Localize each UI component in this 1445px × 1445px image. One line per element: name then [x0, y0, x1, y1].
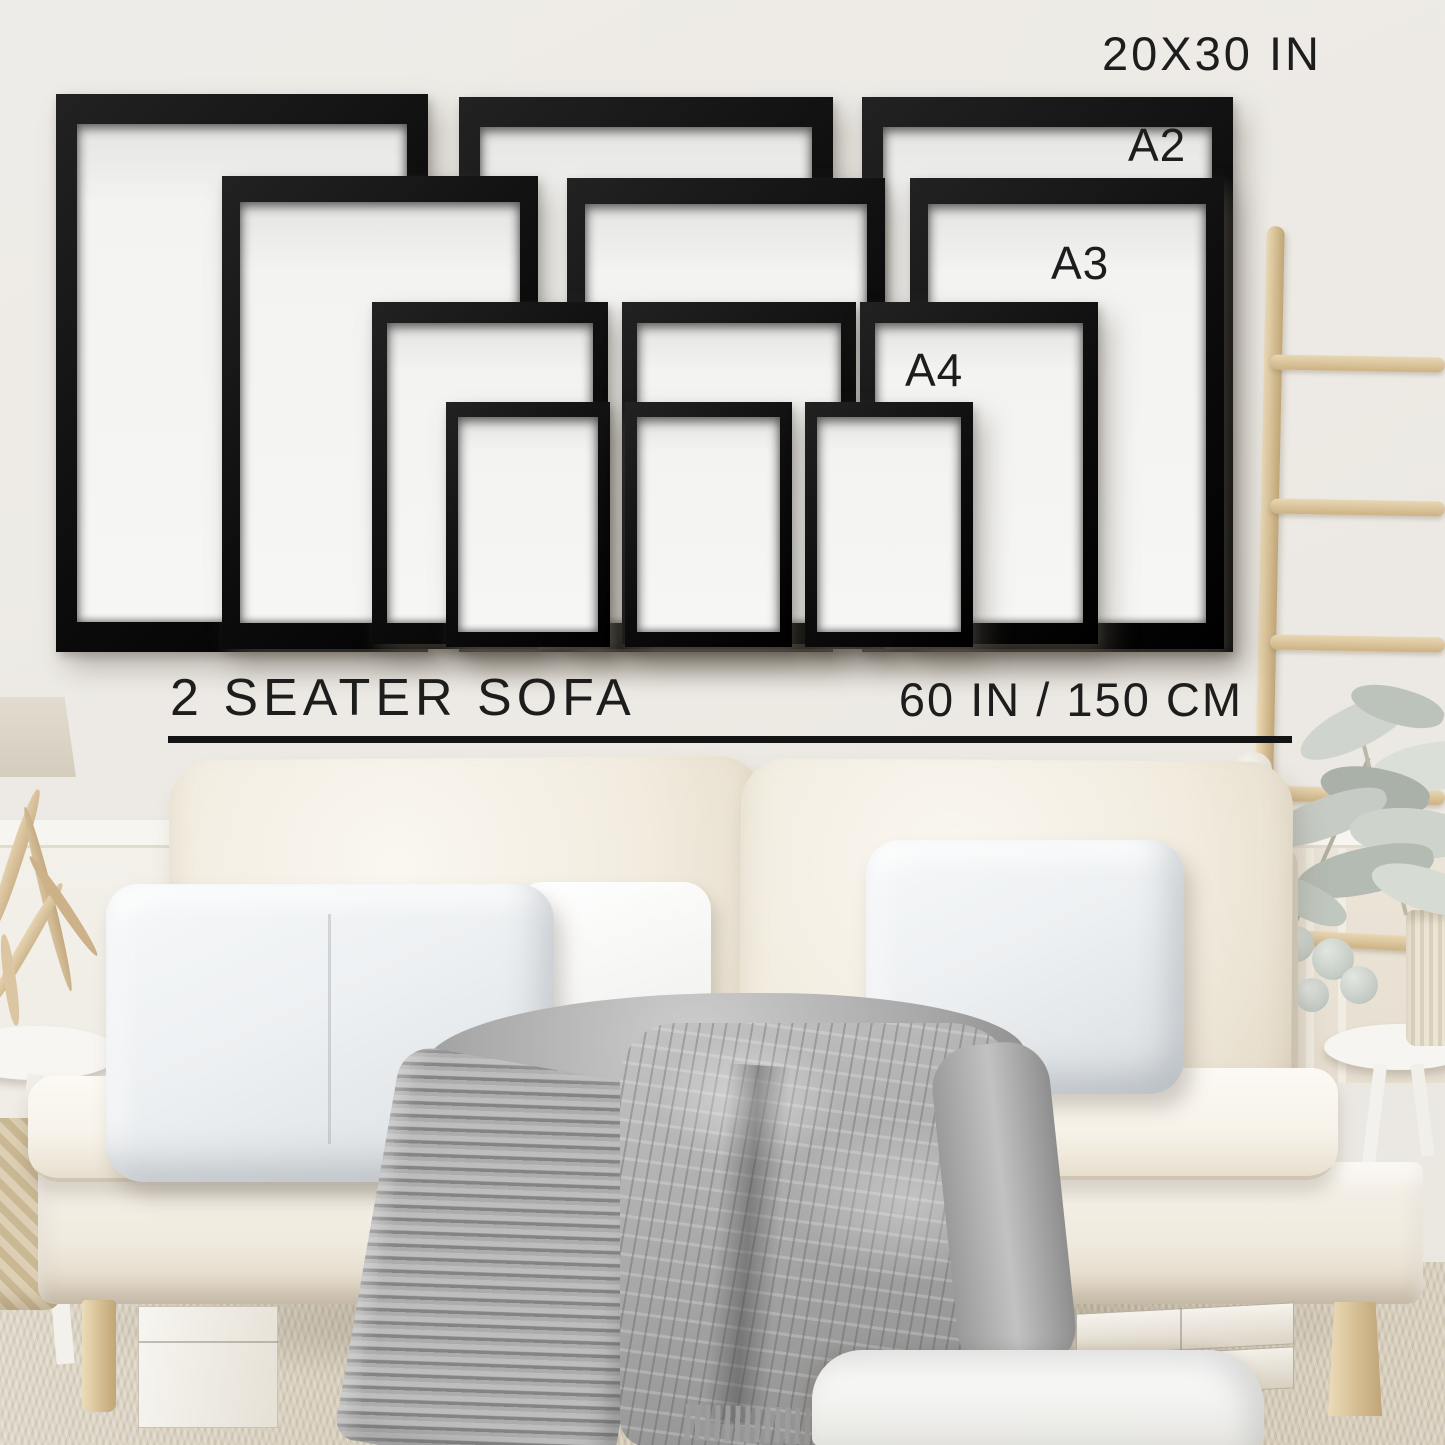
- label-size-a4: A4: [905, 347, 963, 393]
- label-size-a3: A3: [1051, 240, 1109, 286]
- plant-eucalyptus-coin: [1340, 966, 1378, 1004]
- frame-a4-left: [446, 402, 610, 647]
- sofa-leg-left: [82, 1300, 116, 1412]
- label-size-20x30: 20X30 IN: [1102, 30, 1322, 77]
- pillow-seam: [328, 914, 331, 1144]
- frame-paper: [458, 417, 598, 632]
- sofa-type-label: 2 SEATER SOFA: [170, 672, 636, 724]
- frame-a4-right: [805, 402, 973, 647]
- label-size-a2: A2: [1128, 122, 1186, 168]
- frame-paper: [817, 417, 961, 632]
- box-lid-seam: [139, 1341, 279, 1343]
- sofa-width-label: 60 IN / 150 CM: [899, 676, 1243, 723]
- ladder-rung-2: [1270, 498, 1445, 516]
- frame-a4-middle: [625, 402, 792, 647]
- driftwood-sculpture: [0, 786, 110, 1026]
- floor-pillow: [812, 1350, 1264, 1445]
- sofa-leg-right: [1328, 1302, 1382, 1416]
- frame-paper: [637, 417, 780, 632]
- ladder-rung-1: [1270, 354, 1445, 372]
- sofa-width-underline: [168, 736, 1292, 743]
- ladder-rung-3: [1270, 634, 1445, 652]
- lamp-shade: [0, 697, 76, 777]
- plant-eucalyptus-coin: [1295, 978, 1329, 1012]
- size-guide-mockup: 20X30 IN A2 A3 A4 2 SEATER SOFA 60 IN / …: [0, 0, 1445, 1445]
- storage-box-left: [138, 1306, 278, 1428]
